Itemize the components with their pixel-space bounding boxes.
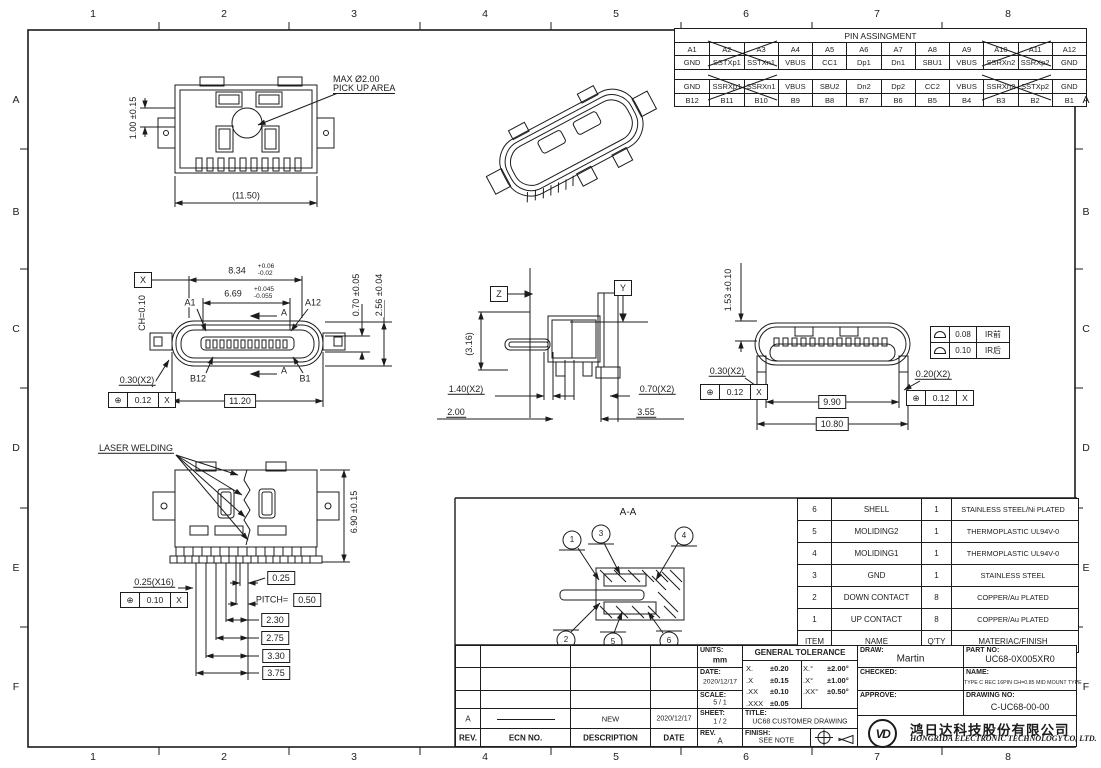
bom-qty: 1 bbox=[921, 499, 951, 520]
rev-row-description: NEW bbox=[570, 708, 651, 729]
pin-cell: SSTXp2 bbox=[1018, 80, 1052, 93]
tol-lower: -0.02 bbox=[258, 270, 274, 277]
balloon-number: 2 bbox=[563, 636, 569, 644]
bom-table: 6SHELL1STAINLESS STEEL/Ni PLATED 5MOLIDI… bbox=[797, 498, 1079, 653]
bom-item: 3 bbox=[798, 565, 831, 586]
tolerance-separator bbox=[801, 660, 802, 708]
pitch-label: PITCH= bbox=[255, 595, 289, 604]
company-logo-text: VD bbox=[876, 727, 890, 741]
rev-header-date: DATE bbox=[650, 728, 698, 747]
balloon-number: 5 bbox=[610, 638, 616, 646]
pin-label-b12: B12 bbox=[189, 374, 207, 383]
pin-label-a12: A12 bbox=[304, 298, 322, 307]
dim-375: 3.75 bbox=[262, 666, 290, 680]
bom-qty: 1 bbox=[921, 543, 951, 564]
rev-header-label: DESCRIPTION bbox=[571, 734, 650, 743]
pin-cell: Dn2 bbox=[846, 80, 880, 93]
rev-header-rev: REV. bbox=[455, 728, 481, 747]
pin-cell: B7 bbox=[846, 94, 880, 106]
position-symbol: ⊕ bbox=[120, 592, 140, 608]
pin-cell: GND bbox=[675, 80, 709, 93]
bom-item: 5 bbox=[798, 521, 831, 542]
bom-row: 2DOWN CONTACT8COPPER/Au PLATED bbox=[798, 586, 1078, 608]
pin-cell: A6 bbox=[846, 43, 880, 55]
rev-value: A bbox=[698, 736, 742, 745]
zone-col-label: 7 bbox=[874, 8, 880, 20]
datum-y-label: Y bbox=[620, 283, 626, 293]
zone-row-label: E bbox=[1082, 562, 1089, 574]
zone-row-label: B bbox=[1082, 206, 1089, 218]
pin-cell: Dp2 bbox=[881, 80, 915, 93]
section-title: A-A bbox=[619, 508, 638, 519]
bom-name: MOLIDING1 bbox=[831, 543, 921, 564]
ir-zone: IR后 bbox=[976, 343, 1009, 358]
dim-025x16: 0.25(X16) bbox=[133, 578, 175, 588]
pin-cell: Dp1 bbox=[846, 56, 880, 69]
title-cell: TITLE:UC68 CUSTOMER DRAWING bbox=[742, 708, 858, 729]
zone-row-label: C bbox=[1082, 323, 1090, 335]
position-tolerance-frame: ⊕0.12X bbox=[700, 384, 768, 400]
rev-empty-cell bbox=[650, 690, 698, 709]
draw-value: Martin bbox=[858, 654, 963, 665]
bom-item: 6 bbox=[798, 499, 831, 520]
pin-row-a-signals: GNDSSTXp1SSTXn1VBUSCC1Dp1Dn1SBU1VBUSSSRX… bbox=[675, 55, 1086, 69]
dim-153: 1.53 ±0.10 bbox=[723, 268, 733, 312]
zone-row-label: F bbox=[1083, 681, 1089, 693]
ir-tolerance: 0.08 bbox=[949, 327, 976, 342]
scale-label: SCALE: bbox=[700, 692, 726, 699]
pin-cell: B1 bbox=[1052, 94, 1086, 106]
pin-cell: GND bbox=[1052, 80, 1086, 93]
rev-empty-cell bbox=[455, 667, 481, 691]
zone-col-label: 1 bbox=[90, 8, 96, 20]
tol-sym: X. bbox=[743, 663, 767, 675]
bom-material: STAINLESS STEEL/Ni PLATED bbox=[951, 499, 1074, 520]
bom-row: 4MOLIDING11THERMOPLASTIC UL94V-0 bbox=[798, 542, 1078, 564]
position-datum: X bbox=[750, 384, 768, 400]
tol-upper: +0.045 bbox=[254, 286, 274, 293]
position-value: 0.12 bbox=[925, 390, 957, 406]
rev-header-label: REV. bbox=[456, 734, 480, 743]
dim-330: 3.30 bbox=[262, 649, 290, 663]
bom-name: GND bbox=[831, 565, 921, 586]
zone-col-label: 1 bbox=[90, 751, 96, 763]
pin-assignment-table: PIN ASSINGMENT A1A2A3A4A5A6A7A8A9A10A11A… bbox=[674, 28, 1087, 107]
pin-cell: GND bbox=[1052, 56, 1086, 69]
bom-item: 1 bbox=[798, 609, 831, 630]
dim-025: 0.25 bbox=[267, 571, 295, 585]
pin-cell: A8 bbox=[915, 43, 949, 55]
position-value: 0.12 bbox=[719, 384, 751, 400]
datum-x: X bbox=[134, 272, 152, 288]
top-view bbox=[140, 77, 338, 207]
pin-cell: SSRXn1 bbox=[744, 80, 778, 93]
pin-cell: Dn1 bbox=[881, 56, 915, 69]
ir-tolerance-table: 0.08IR前 0.10IR后 bbox=[930, 326, 1010, 359]
pin-cell: B3 bbox=[983, 94, 1017, 106]
bom-qty: 1 bbox=[921, 565, 951, 586]
zone-row-label: B bbox=[12, 206, 19, 218]
pin-cell: VBUS bbox=[778, 80, 812, 93]
dim-669: 6.69 bbox=[223, 289, 243, 298]
finish-cell: FINISH:SEE NOTE bbox=[742, 728, 811, 747]
company-name-en: HONGRIDA ELECTRONIC TECHNOLOGY CO, LTD. bbox=[910, 734, 1097, 743]
dim-1080: 10.80 bbox=[816, 417, 849, 431]
rev-description: NEW bbox=[571, 715, 650, 724]
pin-cell: A10 bbox=[983, 43, 1017, 55]
zone-col-label: 8 bbox=[1005, 8, 1011, 20]
tol-val: ±2.00° bbox=[824, 663, 856, 675]
ecn-dash bbox=[497, 719, 555, 720]
zone-col-label: 6 bbox=[743, 8, 749, 20]
pin-cell: SBU2 bbox=[812, 80, 846, 93]
zone-col-label: 2 bbox=[221, 8, 227, 20]
dim-070x2-side: 0.70(X2) bbox=[639, 385, 676, 395]
ir-zone: IR前 bbox=[976, 327, 1009, 342]
position-tolerance-frame: ⊕0.12X bbox=[108, 392, 176, 408]
dim-990: 9.90 bbox=[818, 395, 846, 409]
position-tolerance-frame: ⊕0.12X bbox=[906, 390, 974, 406]
pin-cell: B6 bbox=[881, 94, 915, 106]
rev-header-ecn: ECN NO. bbox=[480, 728, 571, 747]
rev-header-label: DATE bbox=[651, 734, 697, 743]
pitch-value: 0.50 bbox=[293, 593, 321, 607]
general-tolerance-block: GENERAL TOLERANCE X.±0.20X.°±2.00° .X±0.… bbox=[742, 645, 858, 709]
zone-row-label: A bbox=[1082, 94, 1089, 106]
third-angle-projection-icon bbox=[811, 729, 857, 746]
bom-item: 2 bbox=[798, 587, 831, 608]
dim-140x2: 1.40(X2) bbox=[448, 385, 485, 395]
pin-cell: B12 bbox=[675, 94, 709, 106]
pin-cell: B8 bbox=[812, 94, 846, 106]
position-value: 0.10 bbox=[139, 592, 171, 608]
part-no-cell: PART NO:UC68-0X005XR0 bbox=[963, 645, 1077, 668]
pin-cell: VBUS bbox=[949, 56, 983, 69]
sheet-cell: SHEET:1 / 2 bbox=[697, 708, 743, 729]
bottom-view bbox=[153, 455, 350, 680]
zone-row-label: E bbox=[12, 562, 19, 574]
bom-row: 6SHELL1STAINLESS STEEL/Ni PLATED bbox=[798, 499, 1078, 520]
rev-empty-cell bbox=[570, 690, 651, 709]
name-label: NAME: bbox=[966, 669, 989, 676]
zone-col-label: 8 bbox=[1005, 751, 1011, 763]
position-symbol: ⊕ bbox=[700, 384, 720, 400]
bom-name: UP CONTACT bbox=[831, 609, 921, 630]
dim-ch: CH=0.10 bbox=[137, 294, 147, 332]
datum-z-label: Z bbox=[496, 289, 502, 299]
ir-row: 0.10IR后 bbox=[931, 342, 1009, 358]
bom-item: 4 bbox=[798, 543, 831, 564]
tol-sym: .X° bbox=[800, 675, 824, 687]
units-label: UNITS: bbox=[700, 647, 723, 654]
zone-col-label: 5 bbox=[613, 8, 619, 20]
rev-header-label: ECN NO. bbox=[481, 734, 570, 743]
rev-empty-cell bbox=[455, 645, 481, 668]
pin-cell: SBU1 bbox=[915, 56, 949, 69]
company-logo: VD bbox=[868, 719, 897, 748]
pin-row-a-numbers: A1A2A3A4A5A6A7A8A9A10A11A12 bbox=[675, 42, 1086, 55]
dim-height-100: 1.00 ±0.15 bbox=[128, 96, 138, 140]
pin-label-a1: A1 bbox=[183, 298, 196, 307]
drawing-sheet: 1 2 3 4 5 6 7 8 1 2 3 4 5 6 7 8 A B C D … bbox=[0, 0, 1101, 768]
scale-value: 5 / 1 bbox=[698, 699, 742, 706]
dim-690: 6.90 ±0.15 bbox=[349, 490, 359, 534]
tol-sym: .XX bbox=[743, 686, 767, 698]
pin-row-b-signals: GNDSSRXp1SSRXn1VBUSSBU2Dn2Dp2CC2VBUSSSRX… bbox=[675, 79, 1086, 93]
pin-cell: GND bbox=[675, 56, 709, 69]
zone-col-label: 6 bbox=[743, 751, 749, 763]
bom-row: 1UP CONTACT8COPPER/Au PLATED bbox=[798, 608, 1078, 630]
pin-cell: CC2 bbox=[915, 80, 949, 93]
dim-834: 8.34 bbox=[227, 266, 247, 275]
tol-lower: -0.055 bbox=[254, 293, 274, 300]
ir-tolerance: 0.10 bbox=[949, 343, 976, 358]
rev-empty-cell bbox=[455, 690, 481, 709]
pin-cell: VBUS bbox=[949, 80, 983, 93]
dim-200: 2.00 bbox=[446, 408, 466, 418]
pin-label-b1: B1 bbox=[298, 374, 311, 383]
bom-material: STAINLESS STEEL bbox=[951, 565, 1074, 586]
rev-empty-cell bbox=[480, 690, 571, 709]
dim-030x2: 0.30(X2) bbox=[119, 376, 156, 386]
rev-header-description: DESCRIPTION bbox=[570, 728, 651, 747]
rev-value: A bbox=[456, 715, 480, 724]
profile-symbol-icon bbox=[931, 327, 949, 342]
date-label: DATE: bbox=[700, 669, 721, 676]
bom-name: MOLIDING2 bbox=[831, 521, 921, 542]
name-value: TYPE C REC 16PIN CH=0.85 MID MOUNT TYPE bbox=[964, 680, 1076, 686]
pin-cell: A11 bbox=[1018, 43, 1052, 55]
bom-row: 3GND1STAINLESS STEEL bbox=[798, 564, 1078, 586]
front-view-pins bbox=[206, 340, 287, 348]
position-symbol: ⊕ bbox=[108, 392, 128, 408]
dim-020x2: 0.20(X2) bbox=[915, 370, 952, 380]
pin-cell: SSRXn2 bbox=[983, 56, 1017, 69]
position-tolerance-frame: ⊕0.10X bbox=[120, 592, 188, 608]
balloon-number: 3 bbox=[598, 530, 604, 538]
tol-sym: X.° bbox=[800, 663, 824, 675]
pin-cell: A9 bbox=[949, 43, 983, 55]
title-value: UC68 CUSTOMER DRAWING bbox=[743, 718, 857, 725]
pin-cell: SSRXp2 bbox=[1018, 56, 1052, 69]
sheet-value: 1 / 2 bbox=[698, 718, 742, 725]
dim-1120: 11.20 bbox=[224, 394, 256, 408]
position-value: 0.12 bbox=[127, 392, 159, 408]
pin-cell: SSTXn1 bbox=[744, 56, 778, 69]
zone-row-label: F bbox=[13, 681, 19, 693]
datum-z: Z bbox=[490, 286, 508, 302]
position-symbol: ⊕ bbox=[906, 390, 926, 406]
section-arrow-label: A bbox=[280, 308, 288, 317]
datum-x-label: X bbox=[140, 275, 146, 285]
pin-cell: A5 bbox=[812, 43, 846, 55]
bom-qty: 8 bbox=[921, 609, 951, 630]
dim-834-tolerance: +0.06-0.02 bbox=[258, 263, 274, 277]
rev-row-ecn bbox=[480, 708, 571, 729]
bom-material: COPPER/Au PLATED bbox=[951, 609, 1074, 630]
laser-welding-label: LASER WELDING bbox=[98, 444, 174, 454]
rev-row-date: 2020/12/17 bbox=[650, 708, 698, 729]
profile-symbol-icon bbox=[931, 343, 949, 358]
side-view bbox=[437, 268, 684, 422]
rev-empty-cell bbox=[570, 667, 651, 691]
balloon-number: 4 bbox=[681, 532, 687, 540]
finish-label: FINISH: bbox=[745, 730, 770, 737]
bom-name: DOWN CONTACT bbox=[831, 587, 921, 608]
dim-355: 3.55 bbox=[636, 408, 656, 418]
tol-val: ±0.10 bbox=[767, 686, 800, 698]
pin-cell: B5 bbox=[915, 94, 949, 106]
dim-275: 2.75 bbox=[261, 631, 289, 645]
pin-cell: B4 bbox=[949, 94, 983, 106]
zone-col-label: 2 bbox=[221, 751, 227, 763]
top-view-comb bbox=[196, 158, 301, 171]
rev-row-rev: A bbox=[455, 708, 481, 729]
balloon-number: 6 bbox=[666, 637, 672, 645]
drawing-no-value: C-UC68-00-00 bbox=[964, 702, 1076, 712]
tol-sym: .X bbox=[743, 675, 767, 687]
title-label: TITLE: bbox=[745, 710, 767, 717]
pin-cell: A4 bbox=[778, 43, 812, 55]
pin-cell: A3 bbox=[744, 43, 778, 55]
dim-669-tolerance: +0.045-0.055 bbox=[254, 286, 274, 300]
projection-symbol-cell bbox=[810, 728, 858, 747]
position-datum: X bbox=[158, 392, 176, 408]
rev-cell: REV.A bbox=[697, 728, 743, 747]
draw-cell: DRAW:Martin bbox=[857, 645, 964, 668]
pin-cell: B2 bbox=[1018, 94, 1052, 106]
tol-val: ±1.00° bbox=[824, 675, 856, 687]
name-cell: NAME:TYPE C REC 16PIN CH=0.85 MID MOUNT … bbox=[963, 667, 1077, 691]
pin-cell: SSTXp1 bbox=[709, 56, 743, 69]
drawing-no-label: DRAWING NO: bbox=[966, 692, 1015, 699]
tol-val: ±0.15 bbox=[767, 675, 800, 687]
bom-qty: 1 bbox=[921, 521, 951, 542]
pin-row-b-numbers: B12B11B10B9B8B7B6B5B4B3B2B1 bbox=[675, 93, 1086, 106]
checked-label: CHECKED: bbox=[860, 669, 897, 676]
rev-empty-cell bbox=[570, 645, 651, 668]
position-datum: X bbox=[170, 592, 188, 608]
rear-view-teeth bbox=[774, 338, 887, 346]
pin-cell: A2 bbox=[709, 43, 743, 55]
dim-316: (3.16) bbox=[464, 331, 474, 357]
zone-row-label: A bbox=[12, 94, 19, 106]
pin-cell: CC1 bbox=[812, 56, 846, 69]
dim-070: 0.70 ±0.05 bbox=[351, 273, 361, 317]
drawing-no-cell: DRAWING NO:C-UC68-00-00 bbox=[963, 690, 1077, 716]
pin-cell: SSRXn2 bbox=[983, 80, 1017, 93]
tol-val: ±0.20 bbox=[767, 663, 800, 675]
ir-row: 0.08IR前 bbox=[931, 327, 1009, 342]
tolerance-grid: X.±0.20X.°±2.00° .X±0.15.X°±1.00° .XX±0.… bbox=[743, 661, 857, 709]
pin-cell: VBUS bbox=[778, 56, 812, 69]
bom-row: 5MOLIDING21THERMOPLASTIC UL94V-0 bbox=[798, 520, 1078, 542]
bom-qty: 8 bbox=[921, 587, 951, 608]
position-datum: X bbox=[956, 390, 974, 406]
pin-cell: A7 bbox=[881, 43, 915, 55]
rev-empty-cell bbox=[650, 667, 698, 691]
pin-cell: B9 bbox=[778, 94, 812, 106]
pin-cell: B10 bbox=[744, 94, 778, 106]
units-value: mm bbox=[698, 655, 742, 664]
pin-table-title: PIN ASSINGMENT bbox=[675, 29, 1086, 42]
pin-cell: SSRXp1 bbox=[709, 80, 743, 93]
bom-material: THERMOPLASTIC UL94V-0 bbox=[951, 543, 1074, 564]
approve-label: APPROVE: bbox=[860, 692, 897, 699]
part-no-label: PART NO: bbox=[966, 647, 999, 654]
pin-cell: A1 bbox=[675, 43, 709, 55]
approve-cell: APPROVE: bbox=[857, 690, 964, 716]
date-value: 2020/12/17 bbox=[698, 679, 742, 686]
rev-date: 2020/12/17 bbox=[651, 716, 697, 723]
zone-col-label: 3 bbox=[351, 751, 357, 763]
rev-empty-cell bbox=[480, 645, 571, 668]
rev-empty-cell bbox=[650, 645, 698, 668]
dim-256: 2.56 ±0.04 bbox=[374, 273, 384, 317]
dim-030x2-rear: 0.30(X2) bbox=[709, 367, 746, 377]
tol-sym: .XX° bbox=[800, 686, 824, 698]
scale-cell: SCALE:5 / 1 bbox=[697, 690, 743, 709]
datum-y: Y bbox=[614, 280, 632, 296]
zone-row-label: D bbox=[1082, 442, 1090, 454]
tol-val: ±0.50° bbox=[824, 686, 856, 698]
zone-row-label: D bbox=[12, 442, 20, 454]
zone-col-label: 7 bbox=[874, 751, 880, 763]
sheet-label: SHEET: bbox=[700, 710, 725, 717]
section-arrow-label: A bbox=[280, 366, 288, 375]
pin-cell: B11 bbox=[709, 94, 743, 106]
zone-col-label: 3 bbox=[351, 8, 357, 20]
date-cell: DATE:2020/12/17 bbox=[697, 667, 743, 691]
units-cell: UNITS:mm bbox=[697, 645, 743, 668]
checked-cell: CHECKED: bbox=[857, 667, 964, 691]
finish-value: SEE NOTE bbox=[743, 737, 810, 744]
balloon-number: 1 bbox=[569, 536, 575, 544]
pin-cell: A12 bbox=[1052, 43, 1086, 55]
zone-row-label: C bbox=[12, 323, 20, 335]
pin-table-gap bbox=[675, 69, 1086, 79]
zone-col-label: 4 bbox=[482, 751, 488, 763]
dim-width-1150: (11.50) bbox=[231, 191, 261, 200]
rev-empty-cell bbox=[480, 667, 571, 691]
dim-230: 2.30 bbox=[261, 613, 289, 627]
pickup-note-line2: PICK UP AREA bbox=[333, 83, 395, 94]
bom-material: THERMOPLASTIC UL94V-0 bbox=[951, 521, 1074, 542]
zone-col-label: 4 bbox=[482, 8, 488, 20]
bom-name: SHELL bbox=[831, 499, 921, 520]
zone-col-label: 5 bbox=[613, 751, 619, 763]
isometric-view bbox=[472, 65, 672, 225]
general-tolerance-title: GENERAL TOLERANCE bbox=[743, 646, 857, 661]
bom-material: COPPER/Au PLATED bbox=[951, 587, 1074, 608]
part-no-value: UC68-0X005XR0 bbox=[964, 654, 1076, 664]
tol-upper: +0.06 bbox=[258, 263, 274, 270]
